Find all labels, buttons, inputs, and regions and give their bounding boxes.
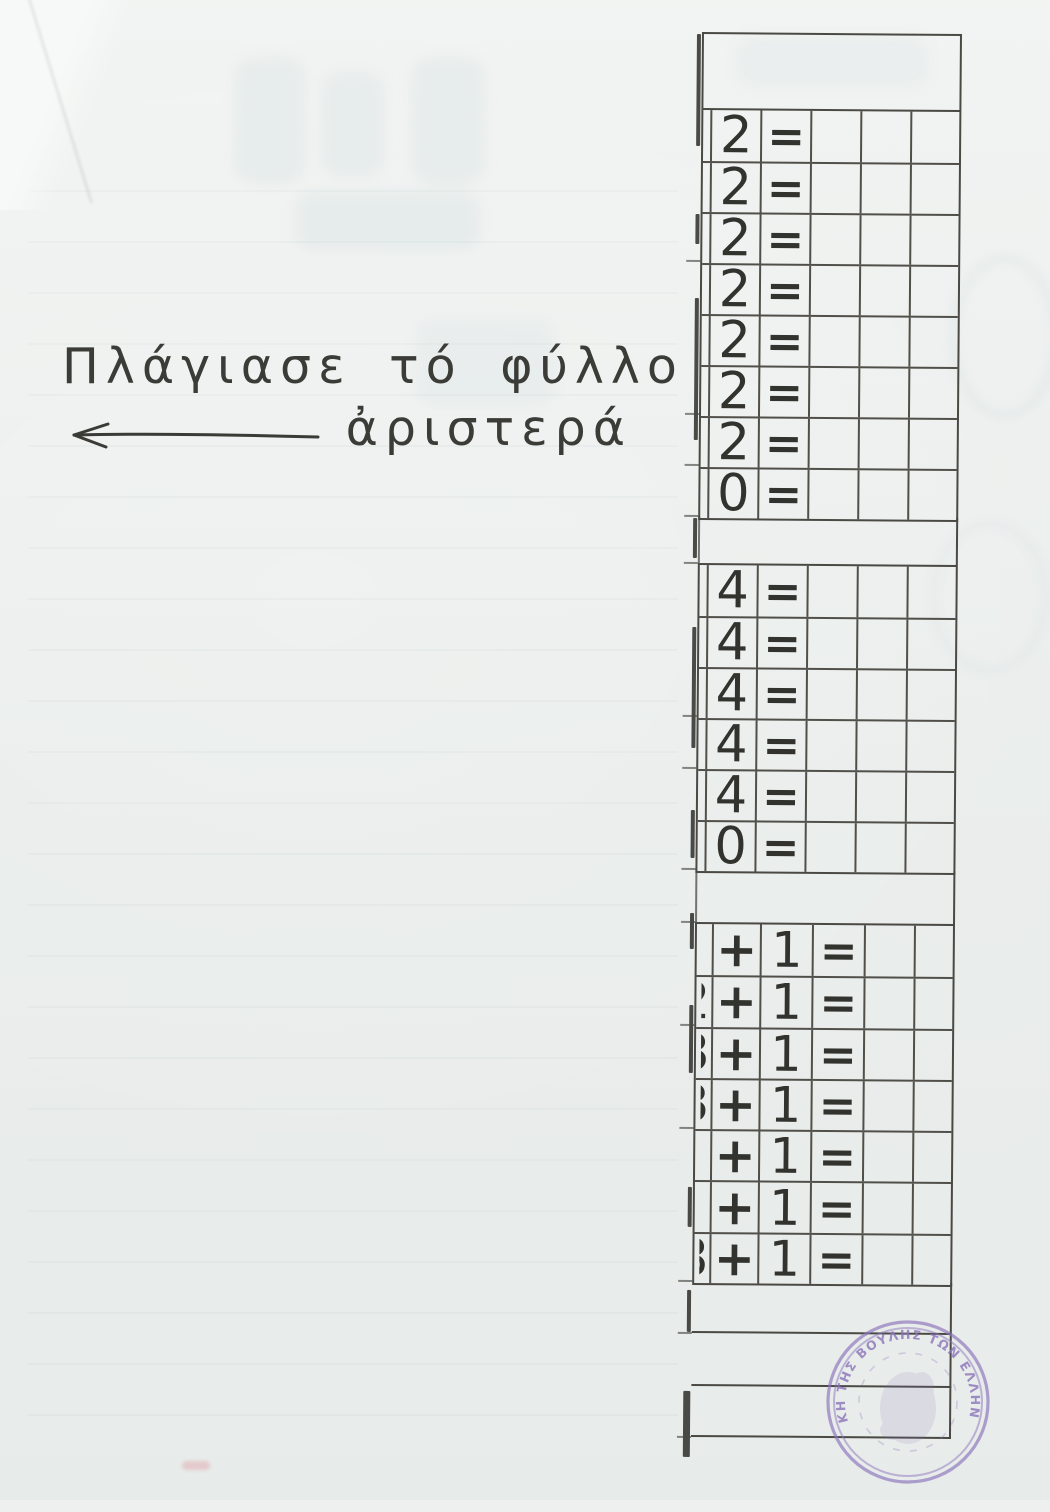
row-line-overhang [684, 562, 698, 564]
equals-cell: = [759, 214, 809, 263]
equals-cell: = [809, 1235, 861, 1285]
fold-edge-mark [688, 1187, 692, 1227]
equals-cell: = [811, 978, 863, 1028]
equals-cell: = [811, 1029, 863, 1079]
answer-cell [859, 266, 909, 315]
fold-edge-mark [691, 810, 695, 858]
exercise-table: 2=2=2=2=2=2=2=0=4=4=4=4=4=0=+1=2+1=3+1=3… [0, 0, 1050, 1503]
fold-sliver-cell: 2 [696, 977, 711, 1026]
table-row: 2= [701, 416, 957, 469]
table-row: 0= [700, 467, 956, 520]
table-row: 8+1= [694, 1232, 950, 1285]
equals-cell: = [755, 771, 805, 820]
fold-edge-mark [693, 518, 697, 558]
table-section-plus-one: +1=2+1=3+1=3+1=+1=+1=8+1= [692, 922, 955, 1287]
table-row: +1= [697, 924, 953, 977]
row-line-overhang [680, 1024, 694, 1026]
answer-cell [858, 419, 908, 468]
answer-cell [855, 772, 905, 821]
stamp-emblem [880, 1372, 936, 1444]
answer-cell [860, 164, 910, 213]
answer-cell [910, 165, 959, 214]
plus-cell: + [710, 1131, 758, 1181]
table-row: 4= [699, 565, 955, 618]
answer-cell [862, 1132, 912, 1182]
equals-cell: = [755, 720, 805, 769]
operand-cell: 2 [710, 110, 760, 161]
answer-cell [805, 772, 855, 821]
equals-cell: = [810, 1081, 862, 1131]
plus-cell: + [712, 924, 760, 976]
answer-cell [910, 112, 959, 163]
plus-cell: + [710, 1080, 758, 1130]
row-line-overhang [679, 1127, 693, 1129]
answer-cell [809, 266, 859, 315]
operand-cell: 2 [708, 418, 758, 467]
answer-cell [863, 979, 913, 1029]
row-line-overhang [681, 921, 695, 923]
answer-cell [808, 368, 858, 417]
operand-cell: 4 [705, 771, 755, 820]
operand-cell: 4 [705, 720, 755, 769]
answer-cell [908, 369, 957, 418]
table-row: 2= [701, 314, 957, 367]
answer-cell [858, 317, 908, 366]
equals-cell: = [756, 618, 806, 667]
answer-cell [856, 566, 906, 617]
operand-cell: 2 [709, 214, 759, 263]
operand-cell: 1 [758, 1183, 810, 1233]
library-stamp: ΚΗ ΤΗΣ ΒΟΥΛΗΣ ΤΩΝ ΕΛΛΗΝΩΝ [798, 1292, 1018, 1512]
operand-cell: 1 [760, 924, 812, 976]
operand-cell: 2 [710, 163, 760, 212]
table-row: 4= [699, 616, 955, 669]
fold-edge-mark [689, 1005, 694, 1073]
row-line-overhang [678, 1280, 692, 1282]
equals-cell: = [754, 822, 804, 871]
row-line-overhang [686, 260, 700, 262]
answer-cell [806, 619, 856, 668]
table-row: 4= [698, 718, 954, 771]
row-line-overhang [677, 1436, 691, 1438]
table-gap-band [695, 869, 955, 924]
answer-cell [806, 670, 856, 719]
answer-cell [905, 722, 954, 771]
fold-sliver-cell [695, 1182, 710, 1231]
answer-cell [856, 619, 906, 668]
fold-edge-mark [683, 1391, 691, 1457]
answer-cell [857, 470, 907, 519]
fold-sliver-cell [697, 924, 712, 975]
equals-cell: = [758, 316, 808, 365]
answer-cell [908, 318, 957, 367]
table-gap-band [698, 516, 958, 565]
table-row: 3+1= [695, 1078, 951, 1131]
operand-cell: 0 [704, 822, 754, 871]
answer-cell [861, 1235, 911, 1285]
answer-cell [859, 215, 909, 264]
row-line-overhang [682, 767, 696, 769]
operand-cell: 1 [758, 1080, 810, 1130]
fold-edge-mark [690, 913, 694, 949]
hidden-operand-fragment: 8 [699, 1234, 708, 1283]
row-line-overhang [678, 1332, 692, 1334]
table-row: 2= [702, 212, 958, 265]
answer-cell [858, 368, 908, 417]
answer-cell [911, 1235, 950, 1285]
answer-cell [863, 1030, 913, 1080]
equals-cell: = [756, 565, 806, 616]
plus-cell: + [711, 1029, 759, 1079]
answer-cell [810, 164, 860, 213]
row-line-overhang [685, 464, 699, 466]
fold-sliver-cell [695, 1131, 710, 1180]
operand-cell: 4 [706, 618, 756, 667]
fold-edge-mark [687, 1290, 691, 1332]
answer-cell [912, 1184, 951, 1234]
plus-cell: + [710, 1183, 758, 1233]
answer-cell [805, 721, 855, 770]
answer-cell [908, 420, 957, 469]
answer-cell [906, 567, 955, 618]
row-line-overhang [684, 515, 698, 517]
answer-cell [806, 566, 856, 617]
answer-cell [862, 1081, 912, 1131]
table-row: 4= [699, 667, 955, 720]
equals-cell: = [810, 1183, 862, 1233]
fold-sliver-cell: 3 [695, 1080, 710, 1129]
answer-cell [807, 470, 857, 519]
operand-cell: 4 [706, 669, 756, 718]
fold-sliver-cell: 3 [696, 1029, 711, 1078]
table-row: +1= [695, 1129, 951, 1182]
table-row: 2= [703, 161, 959, 214]
equals-cell: = [756, 669, 806, 718]
answer-cell [905, 773, 954, 822]
answer-cell [860, 111, 910, 162]
table-section-fours: 4=4=4=4=4=0= [695, 563, 957, 875]
answer-cell [808, 419, 858, 468]
table-row: 2= [702, 263, 958, 316]
table-row: 3+1= [696, 1027, 952, 1080]
plus-cell: + [709, 1234, 757, 1284]
answer-cell [808, 317, 858, 366]
equals-cell: = [757, 469, 807, 518]
table-header-band [701, 32, 962, 110]
row-line-overhang [685, 413, 699, 415]
answer-cell [906, 620, 955, 669]
row-line-overhang [683, 715, 697, 717]
fold-edge-mark [695, 214, 699, 244]
operand-cell: 1 [759, 1029, 811, 1079]
equals-cell: = [758, 418, 808, 467]
answer-cell [906, 671, 955, 720]
plus-cell: + [711, 977, 759, 1027]
equals-cell: = [810, 1132, 862, 1182]
answer-cell [909, 267, 958, 316]
operand-cell: 2 [708, 367, 758, 416]
answer-cell [864, 925, 914, 977]
answer-cell [904, 824, 953, 873]
hidden-operand-fragment: 2 [701, 977, 710, 1026]
answer-cell [914, 926, 953, 978]
answer-cell [804, 823, 854, 872]
operand-cell: 2 [708, 316, 758, 365]
answer-cell [854, 823, 904, 872]
fold-sliver-cell: 8 [694, 1234, 709, 1283]
table-row: 2+1= [696, 975, 952, 1028]
equals-cell: = [760, 163, 810, 212]
equals-cell: = [758, 367, 808, 416]
operand-cell: 1 [757, 1234, 809, 1284]
table-row: +1= [695, 1180, 951, 1233]
table-row: 2= [701, 365, 957, 418]
operand-cell: 0 [707, 469, 757, 518]
operand-cell: 1 [759, 978, 811, 1028]
answer-cell [912, 1082, 951, 1132]
row-line-overhang [681, 868, 695, 870]
answer-cell [912, 1133, 951, 1183]
hidden-operand-fragment: 3 [700, 1080, 709, 1129]
table-row: 2= [703, 110, 959, 163]
operand-cell: 2 [709, 265, 759, 314]
operand-cell: 4 [706, 565, 756, 616]
hidden-operand-fragment: 3 [701, 1029, 710, 1078]
answer-cell [913, 979, 952, 1029]
answer-cell [856, 670, 906, 719]
answer-cell [809, 215, 859, 264]
answer-cell [907, 471, 956, 520]
equals-cell: = [812, 925, 864, 977]
table-row: 0= [697, 820, 953, 873]
equals-cell: = [759, 265, 809, 314]
operand-cell: 1 [758, 1132, 810, 1182]
answer-cell [862, 1184, 912, 1234]
answer-cell [909, 216, 958, 265]
answer-cell [913, 1030, 952, 1080]
equals-cell: = [760, 110, 810, 161]
answer-cell [810, 111, 860, 162]
table-row: 4= [698, 769, 954, 822]
answer-cell [855, 721, 905, 770]
table-section-twos: 2=2=2=2=2=2=2=0= [698, 108, 961, 522]
